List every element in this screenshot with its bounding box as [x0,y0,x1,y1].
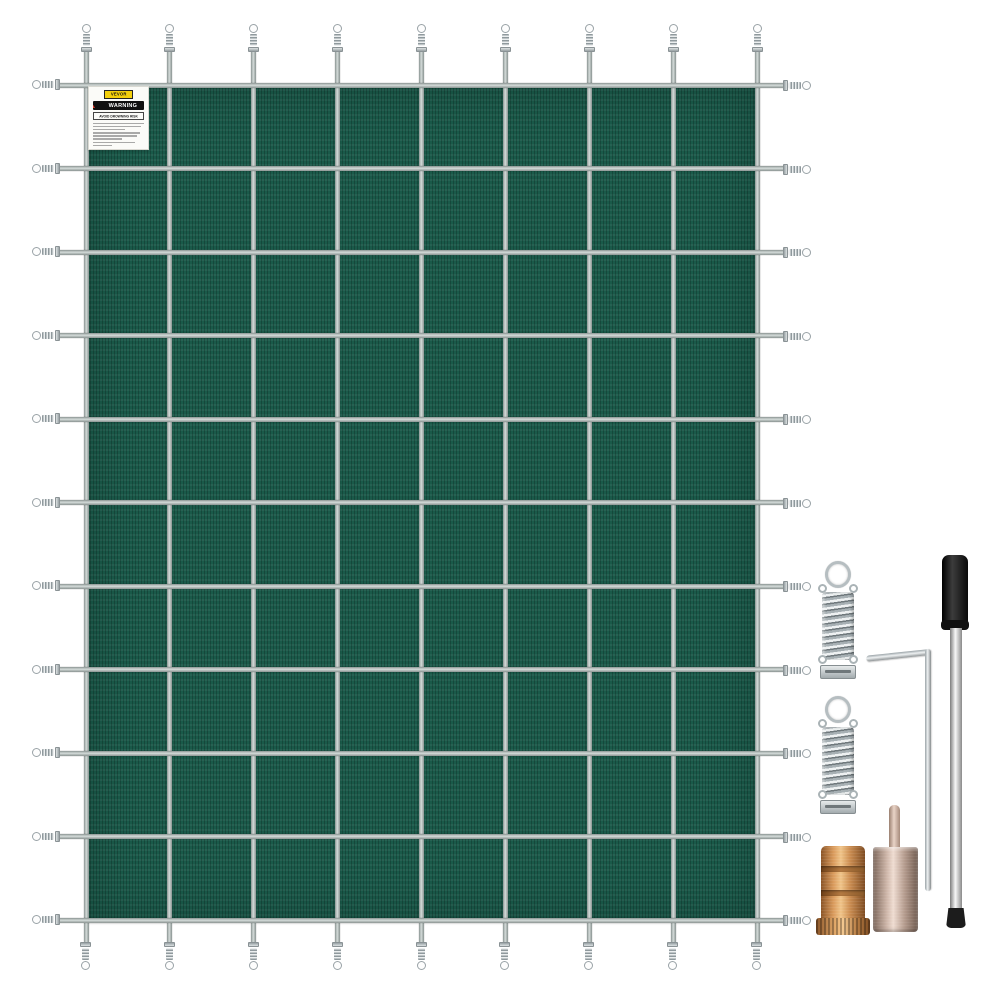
hex-key-icon [925,649,931,891]
brass-anchor-knurled-base [816,918,870,935]
spring-buckle [820,665,856,679]
anchor-tamping-tool [873,805,918,932]
spring-hook [849,790,858,799]
spring-buckle [820,800,856,814]
tamping-tool-body [873,847,918,932]
anchor-groove [821,866,865,872]
product-photo-stage: VEVOR WARNING AVOID DROWNING RISK [0,0,1000,1000]
spring-ring [825,696,851,723]
hardware-kit [0,0,1000,1000]
installation-rod-shaft [950,628,962,910]
spring-hook [849,655,858,664]
cover-spring-1 [816,561,860,685]
spring-hook [818,790,827,799]
tamping-tool-pin [889,805,900,851]
anchor-groove [821,890,865,896]
brass-anchor-body [821,846,865,920]
brass-anchor [816,846,870,936]
spring-coil [822,727,854,795]
cover-spring-2 [816,696,860,820]
installation-rod-handle [942,555,968,629]
spring-coil [822,592,854,660]
hex-key-icon [866,649,930,662]
installation-rod-tip [946,908,966,928]
spring-hook [818,655,827,664]
spring-ring [825,561,851,588]
